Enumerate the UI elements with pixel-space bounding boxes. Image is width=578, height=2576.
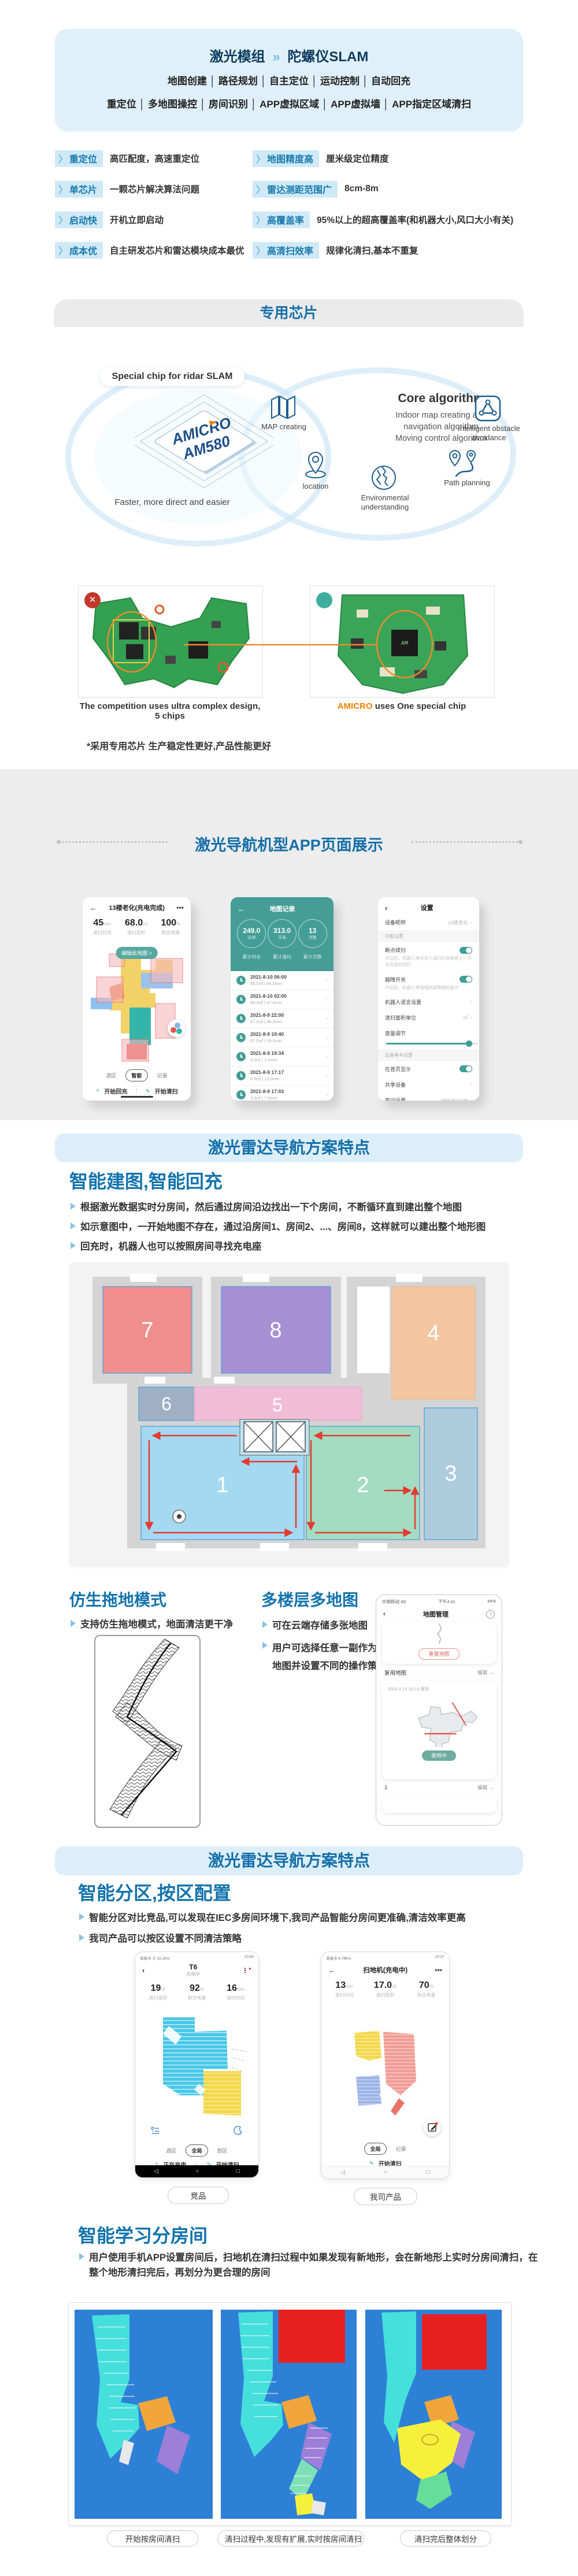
home-indicator	[121, 1096, 153, 1098]
chevron-icon: 〉	[256, 155, 265, 165]
chevron-icon: 〉	[58, 155, 68, 165]
record-row[interactable]: 2021-8-9 22:00 67.0㎡ | 46.0min ›	[231, 1009, 334, 1028]
record-row[interactable]: 2021-8-9 19:34 4.0㎡ | 1.0min ›	[231, 1047, 334, 1066]
section-function: 功能设置	[378, 930, 479, 942]
saved-map-card[interactable]: 2020.4.15 15:13 保存 使用中	[382, 1681, 496, 1779]
feature-item: 〉重定位 高匹配度，高速重定位	[55, 151, 253, 165]
nav-back-icon[interactable]: ◁	[154, 2168, 158, 2174]
toggle-on[interactable]	[460, 1065, 472, 1072]
mode-tabs: 选区 全局 划区	[135, 2144, 258, 2157]
caption-final-split: 清扫完后整体划分	[400, 2530, 491, 2547]
status-bar: 中国移动 4G 下午4:41 44%	[376, 1595, 502, 1606]
chevron-icon: 〉	[256, 247, 265, 257]
feature-item: 〉启动快 开机立即启动	[55, 213, 253, 226]
clock-icon	[236, 1071, 246, 1080]
nav2-banner: 激光雷达导航方案特点	[55, 1846, 523, 1875]
clock-icon	[236, 976, 246, 985]
total-circle: 313.0平米 累计清扫	[268, 919, 297, 960]
map-save-date: 2020.4.15 15:13 保存	[382, 1681, 496, 1692]
bullet-icon	[262, 1642, 268, 1649]
bullet-icon	[79, 2253, 84, 2260]
phone-our-product: 未插卡 6.78K/s 10:27 ← 扫地机(充电中) ••• 13min 清…	[321, 1951, 450, 2179]
toggle-on[interactable]	[460, 976, 472, 983]
stat-item: 16min 清扫时间	[227, 1983, 245, 2001]
nav2-bullet-0: 智能分区对比竞品,可以发现在IEC多房间环境下,我司产品智能分房间更准确,清洁效…	[79, 1911, 542, 1926]
map-1-row: 1 编辑 →	[376, 1779, 502, 1796]
edit-link[interactable]: 编辑 →	[477, 1669, 494, 1676]
map-sketch-image	[382, 1622, 496, 1645]
segmentation-map-2	[221, 2310, 357, 2519]
tab-zone[interactable]: 划区	[217, 2147, 228, 2154]
location-pin-icon	[303, 451, 328, 479]
feature-label-pill: 〉雷达测距范围广	[253, 181, 338, 198]
feature-desc: 一颗芯片解决算法问题	[110, 183, 199, 195]
setting-room[interactable]: 房间设置 default room›	[378, 1092, 479, 1101]
back-icon[interactable]: ←	[238, 905, 245, 913]
mop-heading: 仿生拖地模式	[69, 1588, 166, 1611]
svg-text:7: 7	[141, 1318, 153, 1343]
competitor-caption: The competition uses ultra complex desig…	[78, 701, 262, 721]
mop-pattern-image	[94, 1635, 201, 1828]
record-row[interactable]: 2021-8-10 06:00 68.0㎡ | 45.0min ›	[231, 971, 334, 990]
chevron-right-icon: ›	[470, 1014, 472, 1021]
showcase-title: 激光导航机型APP页面展示	[0, 832, 578, 855]
setting-volume: 音量调节	[378, 1025, 479, 1037]
totals-circles: 249.0分钟 累计时长 313.0平米 累计清扫 13次数 累计次数	[231, 916, 334, 960]
chip-section-banner: 专用芯片	[54, 299, 524, 327]
stat-item: 19㎡ 清扫面积	[149, 1983, 168, 2001]
phone-map-records: ← 地图记录 249.0分钟 累计时长 313.0平米 累计清扫	[231, 897, 334, 1101]
records-title: 地图记录	[245, 904, 320, 913]
android-navbar: ◁ ○ □	[135, 2165, 258, 2177]
setting-share[interactable]: 共享设备›	[378, 1077, 479, 1092]
nav-recent-icon[interactable]: □	[236, 2168, 240, 2174]
segmentation-map-3	[365, 2310, 502, 2519]
bullet-icon	[79, 1934, 84, 1941]
records-list: 2021-8-10 06:00 68.0㎡ | 45.0min › 2021-8…	[231, 971, 334, 1101]
map-icon	[269, 395, 297, 419]
stat-item: 45min 清扫时间	[93, 918, 112, 936]
svg-text:5: 5	[272, 1395, 283, 1415]
segmentation-map-1	[75, 2310, 213, 2519]
clean-stats: 45min 清扫时间 68.0㎡ 清扫面积 100% 剩余电量	[83, 915, 191, 936]
order-list-icon[interactable]	[150, 2125, 161, 2136]
nav1-bullet-1: 如示意图中，一开始地图不存在，通过沿房间1、房间2、...、房间8，这样就可以建…	[71, 1220, 533, 1235]
chip-footnote: *采用专用芯片 生产稳定性更好,产品性能更好	[87, 738, 271, 752]
bullet-icon	[71, 1620, 76, 1627]
section-basic: 设备基本设置	[378, 1049, 479, 1061]
device-state: 充电中	[144, 1971, 242, 1977]
obstacle-avoidance-icon	[475, 395, 501, 422]
bullet-icon	[71, 1242, 76, 1249]
clock-icon	[236, 1090, 246, 1099]
clean-button[interactable]: 开始清扫	[155, 1087, 178, 1095]
chevron-right-icon: ›	[326, 1054, 328, 1060]
feature-label-pill: 〉重定位	[55, 150, 103, 167]
reuse-map-row: 复用地图 编辑 →	[376, 1664, 502, 1681]
record-row[interactable]: 2021-8-9 17:03 3.0㎡ | 7.0min ›	[231, 1086, 334, 1101]
tab-global[interactable]: 全局	[364, 2143, 386, 2155]
floorplan-image: 1 2 3 4 5 6 7 8	[69, 1262, 509, 1566]
in-use-button[interactable]: 使用中	[422, 1750, 456, 1761]
hero-feature-line-2: 重定位 │ 多地图操控 │ 房间识别 │ APP虚拟区域 │ APP虚拟墙 │ …	[55, 96, 523, 110]
hero-card: 激光模组 » 陀螺仪SLAM 地图创建 │ 路径规划 │ 自主定位 │ 运动控制…	[55, 29, 523, 132]
check-badge-icon: ✓	[316, 592, 332, 608]
device-name: 扫地机(充电中)	[336, 1965, 435, 1975]
connector-line	[54, 639, 524, 650]
saved-map-image	[382, 1692, 496, 1747]
svg-text:2: 2	[357, 1473, 369, 1497]
core-algorithm-title: Core algorithm	[337, 392, 545, 406]
record-row[interactable]: 2021-8-9 19:40 67.0㎡ | 54.0min ›	[231, 1028, 334, 1047]
caption-start-clean: 开始按房间清扫	[107, 2530, 198, 2547]
feature-item: 〉雷达测距范围广 8cm-8m	[253, 182, 535, 196]
chevron-right-icon: ›	[326, 1035, 328, 1041]
back-icon[interactable]: ←	[90, 904, 97, 912]
tab-select-zone[interactable]: 选区	[166, 2147, 176, 2154]
our-map-image	[351, 2026, 420, 2124]
feature-item: 〉地图精度高 厘米级定位精度	[253, 151, 535, 165]
clean-stats: 13min 清扫时间 17.0㎡ 清扫面积 70% 剩余电量	[321, 1977, 449, 1998]
feature-desc: 厘米级定位精度	[326, 152, 389, 165]
chevron-right-icon: ›	[326, 1073, 328, 1079]
hero-feature-line-1: 地图创建 │ 路径规划 │ 自主定位 │ 运动控制 │ 自动回充	[55, 73, 523, 87]
clean-stats: 19㎡ 清扫面积 92% 剩余电量 16min 清扫时间	[135, 1980, 258, 2001]
back-icon[interactable]: ←	[328, 1966, 336, 1975]
record-row[interactable]: 2021-8-9 17:17 6.0㎡ | 13.0min ›	[231, 1066, 334, 1086]
amicro-brand: AMICRO	[338, 701, 373, 711]
chevron-right-icon: ›	[326, 1092, 328, 1098]
chevron-right-icon: ›	[470, 920, 472, 926]
nav1-bullet-0: 根据激光数据实时分房间，然后通过房间沿边找出一下个房间，不断循环直到建出整个地图	[71, 1200, 533, 1215]
edit-link[interactable]: 编辑 →	[477, 1784, 494, 1791]
chevron-right-icon: ›	[326, 977, 328, 984]
record-row[interactable]: 2021-8-10 02:00 68.0㎡ | 47.0min ›	[231, 990, 334, 1009]
chip-tagline: Faster, more direct and easier	[97, 497, 247, 507]
reset-map-button[interactable]: 重置地图	[418, 1648, 459, 1660]
more-menu-icon[interactable]: ⋮●	[242, 1966, 251, 1975]
learning-heading: 智能学习分房间	[78, 2221, 208, 2248]
status-right: 10:27	[435, 1955, 444, 1961]
chevron-icon: 〉	[256, 216, 265, 226]
feature-label-pill: 〉成本优	[55, 242, 103, 259]
more-menu-icon[interactable]: •••	[176, 904, 184, 912]
feature-label-pill: 〉启动快	[55, 211, 103, 228]
status-left: 未插卡 6.78K/s	[326, 1955, 351, 1961]
setting-show-home: 在首页显示	[378, 1061, 479, 1077]
clock-icon	[236, 995, 246, 1004]
feature-item: 〉成本优 自主研发芯片和雷达模块成本最优	[55, 243, 253, 257]
chevron-icon: 〉	[256, 185, 265, 195]
clock-icon	[236, 1014, 246, 1023]
stat-item: 17.0㎡ 清扫面积	[374, 1980, 397, 1998]
setting-resume-desc: 开启后，机器人再次进入清扫时会继续上一次未完成的清扫	[378, 955, 479, 972]
feature-label-pill: 〉单芯片	[55, 181, 103, 198]
feature-label-pill: 〉高覆盖率	[253, 211, 310, 228]
path-planning-icon	[448, 449, 481, 477]
title-right: 陀螺仪SLAM	[287, 49, 368, 65]
caption-expand-clean: 清扫过程中,发现有扩展,实时按房间清扫	[217, 2530, 364, 2547]
phone-competitor: 未插卡 ⓓ 15.2K/s 10:54 ‹ T6 充电中 ⋮● 19㎡ 清扫面积…	[135, 1951, 259, 2178]
back-icon[interactable]: ‹	[383, 1611, 386, 1618]
product-page: 激光模组 » 陀螺仪SLAM 地图创建 │ 路径规划 │ 自主定位 │ 运动控制…	[0, 0, 578, 2576]
edit-pencil-icon	[424, 2118, 441, 2136]
amicro-caption: AMICRO uses One special chip	[310, 701, 494, 711]
svg-text:8: 8	[269, 1318, 281, 1343]
chip-pill-label: Special chip for ridar SLAM	[100, 367, 244, 386]
feature-item: 〉高覆盖率 95%以上的超高覆盖率(和机器大小,风口大小有关)	[253, 213, 535, 226]
chevron-icon: 〉	[58, 216, 68, 226]
label-competitor: 竞品	[168, 2187, 229, 2204]
volume-slider[interactable]	[386, 1043, 471, 1044]
robot-map-image	[86, 953, 187, 1065]
feature-desc: 规律化清扫,基本不重复	[326, 244, 418, 257]
map-layers-fab[interactable]	[168, 1020, 185, 1037]
settings-title: 设置	[387, 903, 466, 912]
icon-label-map: MAP creating	[249, 422, 318, 432]
status-left: 未插卡 ⓓ 15.2K/s	[140, 1955, 170, 1961]
clean-path-icon: ∿	[145, 1088, 150, 1094]
bullet-icon	[79, 1913, 84, 1920]
recharge-button[interactable]: 开始回充	[104, 1087, 127, 1095]
clock: 下午4:41	[438, 1599, 455, 1605]
clock-icon	[236, 1052, 246, 1061]
chevron-right-icon: ›	[470, 1097, 472, 1101]
chevron-icon: 〉	[58, 247, 68, 257]
action-buttons: ⚡ 开始回充 | ∿ 开始清扫	[83, 1087, 191, 1095]
nav1-heading: 智能建图,智能回充	[69, 1167, 223, 1194]
nav-back-icon[interactable]: ◁	[341, 2169, 346, 2176]
setting-language[interactable]: 机器人语言设置›	[378, 994, 479, 1010]
setting-resume-clean: 断点续扫	[378, 942, 479, 955]
feature-label-pill: 〉地图精度高	[253, 150, 319, 167]
feature-item: 〉高清扫效率 规律化清扫,基本不重复	[253, 243, 535, 257]
chip-card: Special chip for ridar SLAM AMICRO AM580…	[54, 327, 524, 769]
amicro-caption-text: uses One special chip	[373, 701, 466, 711]
tab-records[interactable]: 记录	[396, 2145, 406, 2153]
feature-desc: 8cm-8m	[344, 184, 379, 194]
edit-map-button[interactable]: 编辑此地图 >	[116, 947, 158, 959]
phone-settings: ‹ 设置 设备昵称 13楼老化› 功能设置 断点续扫 开启后，机器人再次进入清扫…	[378, 897, 479, 1101]
multimap-heading: 多楼层多地图	[261, 1588, 358, 1611]
feature-desc: 开机立即启动	[110, 213, 164, 226]
learning-bullet: 用户使用手机APP设置房间后，扫地机在清扫过程中如果发现有新地形，会在新地形上实…	[79, 2251, 542, 2280]
nav1-bullet-2: 回充时，机器人也可以按照房间寻找充电座	[71, 1240, 533, 1255]
nav-home-icon[interactable]: ○	[384, 2169, 387, 2176]
icon-label-environment: Environmental understanding	[347, 493, 423, 512]
setting-obstacle: 越障开关	[378, 972, 479, 984]
title-left: 激光模组	[210, 49, 265, 65]
nav-home-icon[interactable]: ○	[195, 2168, 199, 2174]
core-line-1: Indoor map creating and	[337, 411, 545, 420]
stat-item: 100% 剩余电量	[161, 918, 181, 936]
competitor-map-image	[146, 2014, 249, 2127]
divider: |	[135, 1088, 137, 1094]
bullet-icon	[71, 1203, 76, 1210]
more-menu-icon[interactable]: •••	[435, 1966, 442, 1974]
clock-icon	[236, 1033, 246, 1042]
current-map-card: 重置地图	[382, 1622, 496, 1664]
device-name: T6	[144, 1963, 242, 1971]
total-circle: 249.0分钟 累计时长	[237, 919, 266, 960]
mop-bullet: 支持仿生拖地模式，地面清洁更干净	[71, 1618, 261, 1633]
setting-obstacle-desc: 开启后，机器人将增强跨越障碍的能力	[378, 984, 479, 994]
icon-label-path: Path planning	[435, 478, 499, 488]
stat-item: 13min 清扫时间	[335, 1980, 354, 1998]
label-our-product: 我司产品	[354, 2188, 417, 2205]
chevron-right-icon: ›	[326, 997, 328, 1003]
chevron-right-icon: ›	[470, 1081, 472, 1088]
colored-dots-icon	[168, 1020, 185, 1037]
android-navbar: ◁ ○ □	[321, 2166, 449, 2179]
stat-item: 70% 剩余电量	[417, 1980, 435, 1998]
nav-recent-icon[interactable]: □	[426, 2169, 429, 2176]
feature-desc: 自主研发芯片和雷达模块成本最优	[110, 244, 244, 257]
tab-select-zone[interactable]: 选区	[106, 1072, 116, 1079]
chevrons-icon: »	[269, 49, 283, 65]
tab-records[interactable]: 记录	[157, 1072, 168, 1079]
svg-text:3: 3	[444, 1462, 457, 1486]
feature-desc: 95%以上的超高覆盖率(和机器大小,风口大小有关)	[317, 213, 513, 226]
map-1-card[interactable]	[382, 1796, 496, 1813]
icon-label-location: location	[284, 482, 347, 491]
bolt-icon: ⚡	[95, 1088, 99, 1094]
nav2-heading: 智能分区,按区配置	[78, 1879, 231, 1905]
device-title: 13楼老化(充电完成)	[97, 903, 176, 912]
stat-item: 92% 剩余电量	[188, 1983, 206, 2001]
amicro-chip-image: AMICRO AM580	[135, 391, 273, 500]
feature-item: 〉单芯片 一颗芯片解决算法问题	[55, 182, 253, 196]
help-icon[interactable]: ?	[486, 1610, 495, 1619]
phone-map-management: 中国移动 4G 下午4:41 44% ‹ 地图管理 ? 重置地图 复用地图 编辑…	[376, 1594, 502, 1826]
svg-text:4: 4	[427, 1321, 439, 1345]
feature-desc: 高匹配度，高速重定位	[110, 152, 199, 165]
toggle-on[interactable]	[460, 947, 472, 954]
chevron-right-icon: ›	[326, 1016, 328, 1022]
setting-nickname[interactable]: 设备昵称 13楼老化›	[378, 915, 479, 930]
globe-icon	[370, 464, 397, 491]
svg-text:6: 6	[161, 1393, 172, 1414]
map-toolbar	[135, 2125, 258, 2136]
floorplan-card: 1 2 3 4 5 6 7 8	[69, 1262, 509, 1566]
setting-area-unit[interactable]: 清扫面积单位 ㎡›	[378, 1010, 479, 1025]
tab-smart[interactable]: 智能	[125, 1069, 147, 1081]
nav2-bullet-1: 我司产品可以按区设置不同清洁策略	[79, 1932, 542, 1947]
status-right: 10:54	[244, 1955, 254, 1961]
chevron-right-icon: ›	[470, 999, 472, 1005]
map-tabs: 选区 智能 记录	[83, 1069, 191, 1081]
svg-text:1: 1	[216, 1473, 228, 1497]
phone-map-home: ← 13楼老化(充电完成) ••• 45min 清扫时间 68.0㎡ 清扫面积 …	[83, 897, 191, 1101]
nav1-banner: 激光雷达导航方案特点	[55, 1133, 523, 1162]
icon-label-obstacle: Intelligent obstacle avoidance	[451, 424, 527, 443]
stat-item: 68.0㎡ 清扫面积	[125, 918, 147, 936]
map-mgmt-title: 地图管理	[423, 1609, 449, 1619]
feature-label-pill: 〉高清扫效率	[253, 242, 319, 259]
edit-map-fab[interactable]	[424, 2118, 441, 2136]
mode-tabs: 全局 记录	[321, 2143, 449, 2155]
cross-badge-icon: ✕	[84, 592, 101, 608]
bullet-icon	[262, 1621, 268, 1628]
carrier: 中国移动 4G	[382, 1599, 406, 1605]
bullet-icon	[71, 1222, 76, 1229]
feature-grid: 〉重定位 高匹配度，高速重定位 〉地图精度高 厘米级定位精度 〉单芯片 一颗芯片…	[55, 151, 535, 257]
tab-global[interactable]: 全局	[186, 2144, 208, 2157]
battery: 44%	[487, 1599, 496, 1605]
night-mode-icon[interactable]	[233, 2125, 243, 2136]
red-dot-badge: ●	[249, 1966, 251, 1971]
total-circle: 13次数 累计次数	[298, 919, 327, 960]
chevron-icon: 〉	[58, 185, 68, 195]
segmentation-maps-card	[68, 2302, 512, 2526]
page-title: 激光模组 » 陀螺仪SLAM	[55, 45, 523, 65]
